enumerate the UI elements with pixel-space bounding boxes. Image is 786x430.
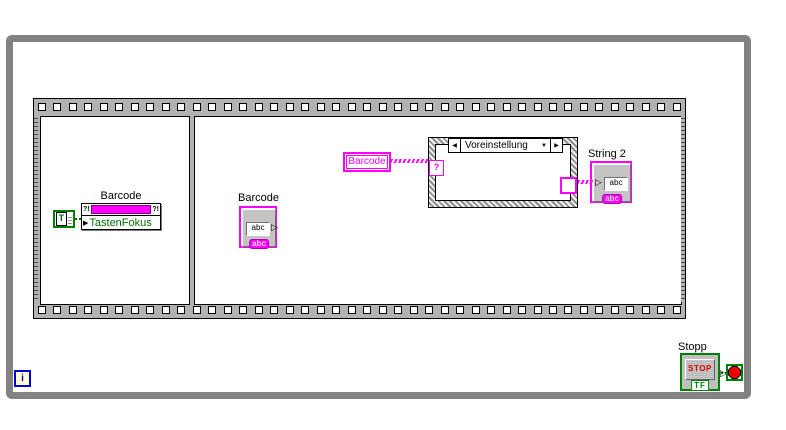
sequence-sprocket-hole [208,306,216,314]
sequence-sprocket-hole [595,103,603,111]
sequence-sprocket-hole [317,103,325,111]
sequence-sprocket-hole [224,103,232,111]
property-node-reference-row: ?! ?! [82,204,160,216]
sequence-sprocket-hole [611,306,619,314]
sequence-sprocket-hole [270,306,278,314]
string-type-tag: abc [602,194,622,204]
sequence-sprocket-hole [580,103,588,111]
sequence-sprocket-hole [456,103,464,111]
sequence-sprocket-hole [348,306,356,314]
sequence-sprocket-hole [503,306,511,314]
boolean-type-tag: TF [691,380,709,391]
sequence-sprocket-hole [177,306,185,314]
sequence-sprocket-hole [642,103,650,111]
sequence-sprocket-hole [425,103,433,111]
block-diagram: Barcode ?! ?! ▶ TastenFokus T Barcode ab… [0,0,786,430]
sequence-sprocket-hole [53,103,61,111]
sequence-sprocket-hole [286,306,294,314]
indicator-input-arrow-icon: ▷ [595,178,602,187]
reference-bar [91,205,152,214]
boolean-slider-icon [68,215,72,224]
sequence-sprocket-hole [487,103,495,111]
string-wire-to-case[interactable] [391,159,430,163]
error-in-glyph: ?! [83,206,90,213]
case-structure[interactable]: ◀ Voreinstellung ▼ ▶ ? [428,137,578,208]
string-control-label[interactable]: Barcode [238,192,279,204]
property-node-property-row[interactable]: ▶ TastenFokus [82,216,160,229]
sequence-sprocket-hole [549,103,557,111]
sequence-sprocket-hole [317,306,325,314]
sequence-sprocket-hole [53,306,61,314]
string-indicator-terminal[interactable]: ▷ abc abc [590,161,632,203]
sequence-sprocket-hole [425,306,433,314]
sequence-sprocket-hole [363,103,371,111]
stop-button-terminal[interactable]: STOP TF ▷ [680,353,720,391]
sequence-sprocket-hole [208,103,216,111]
string-type-tag: abc [249,239,269,249]
control-output-arrow-icon: ▷ [271,223,278,232]
sequence-sprocket-hole [69,306,77,314]
sequence-sprocket-hole [224,306,232,314]
sequence-sprocket-hole [503,103,511,111]
sequence-sprocket-hole [69,103,77,111]
sequence-sprocket-hole [100,103,108,111]
sequence-sprocket-hole [657,103,665,111]
sequence-sprocket-hole [146,306,154,314]
sequence-sprocket-hole [332,103,340,111]
string-indicator-field: abc [604,177,628,191]
sequence-sprocket-hole [642,306,650,314]
sequence-sprocket-hole [38,103,46,111]
string-control-terminal[interactable]: abc ▷ abc [239,206,277,248]
sequence-sprocket-hole [394,306,402,314]
sequence-sprocket-hole [518,103,526,111]
sequence-sprocket-hole [626,103,634,111]
sequence-border-bottom [38,305,681,315]
boolean-wire[interactable] [75,218,81,220]
sequence-sprocket-hole [657,306,665,314]
sequence-sprocket-hole [595,306,603,314]
sequence-sprocket-hole [131,306,139,314]
sequence-sprocket-hole [193,103,201,111]
sequence-sprocket-hole [580,306,588,314]
sequence-sprocket-hole [363,306,371,314]
sequence-sprocket-hole [472,306,480,314]
sequence-sprocket-hole [131,103,139,111]
sequence-sprocket-hole [146,103,154,111]
case-next-button[interactable]: ▶ [550,139,562,152]
sequence-sprocket-hole [456,306,464,314]
sequence-sprocket-hole [441,103,449,111]
sequence-sprocket-hole [193,306,201,314]
sequence-sprocket-hole [239,306,247,314]
string-wire-to-indicator[interactable] [578,180,593,184]
property-name[interactable]: TastenFokus [89,217,151,229]
right-arrow-icon: ▶ [554,142,559,149]
case-selector-value[interactable]: Voreinstellung [461,140,541,151]
sequence-sprocket-hole [611,103,619,111]
write-arrow-icon: ▶ [83,219,88,227]
sequence-sprocket-hole [348,103,356,111]
sequence-sprocket-hole [549,306,557,314]
sequence-sprocket-hole [673,306,681,314]
string-indicator-body: ▷ abc abc [593,164,631,202]
sequence-sprocket-hole [115,306,123,314]
barcode-local-variable[interactable]: Barcode [343,152,391,172]
property-node[interactable]: ?! ?! ▶ TastenFokus [81,203,161,230]
string-indicator-label[interactable]: String 2 [588,148,626,160]
sequence-sprocket-hole [534,103,542,111]
sequence-sprocket-hole [270,103,278,111]
sequence-sprocket-hole [379,306,387,314]
case-previous-button[interactable]: ◀ [449,139,461,152]
stop-sign-fill [729,367,740,378]
sequence-sprocket-hole [441,306,449,314]
sequence-sprocket-hole [255,103,263,111]
case-selector-terminal[interactable]: ? [429,160,444,176]
dropdown-icon[interactable]: ▼ [541,143,547,149]
sequence-sprocket-hole [286,103,294,111]
true-value: T [56,212,67,226]
left-arrow-icon: ◀ [452,142,457,149]
sequence-border-top [38,102,681,112]
sequence-sprocket-hole [255,306,263,314]
error-out-glyph: ?! [152,206,159,213]
sequence-sprocket-hole [564,103,572,111]
sequence-sprocket-hole [100,306,108,314]
sequence-sprocket-hole [472,103,480,111]
property-node-label[interactable]: Barcode [81,190,161,202]
sequence-sprocket-hole [162,103,170,111]
sequence-sprocket-hole [162,306,170,314]
sequence-sprocket-hole [115,103,123,111]
stop-sign-icon [728,366,741,379]
sequence-sprocket-hole [177,103,185,111]
stop-button-label[interactable]: Stopp [678,341,707,353]
sequence-sprocket-hole [84,103,92,111]
sequence-sprocket-hole [518,306,526,314]
sequence-sprocket-hole [379,103,387,111]
sequence-sprocket-hole [534,306,542,314]
sequence-sprocket-hole [564,306,572,314]
string-control-body: abc ▷ abc [242,209,276,247]
case-output-tunnel[interactable] [560,177,577,194]
boolean-wire-stop[interactable] [721,372,726,374]
stop-button-face[interactable]: STOP [685,359,715,380]
sequence-sprocket-hole [332,306,340,314]
string-control-field: abc [246,222,270,236]
sequence-sprocket-hole [626,306,634,314]
sequence-sprocket-hole [487,306,495,314]
sequence-sprocket-hole [410,306,418,314]
sequence-sprocket-hole [410,103,418,111]
iteration-terminal[interactable]: i [14,370,31,387]
sequence-sprocket-hole [301,103,309,111]
sequence-border-right [681,115,685,302]
loop-condition-terminal[interactable] [726,364,743,381]
sequence-sprocket-hole [394,103,402,111]
boolean-true-constant[interactable]: T [53,210,75,228]
case-selector[interactable]: ◀ Voreinstellung ▼ ▶ [448,138,563,153]
sequence-sprocket-hole [84,306,92,314]
sequence-sprocket-hole [239,103,247,111]
sequence-border-left [34,115,38,302]
sequence-sprocket-hole [673,103,681,111]
sequence-sprocket-hole [38,306,46,314]
sequence-sprocket-hole [301,306,309,314]
local-variable-name: Barcode [346,155,388,169]
